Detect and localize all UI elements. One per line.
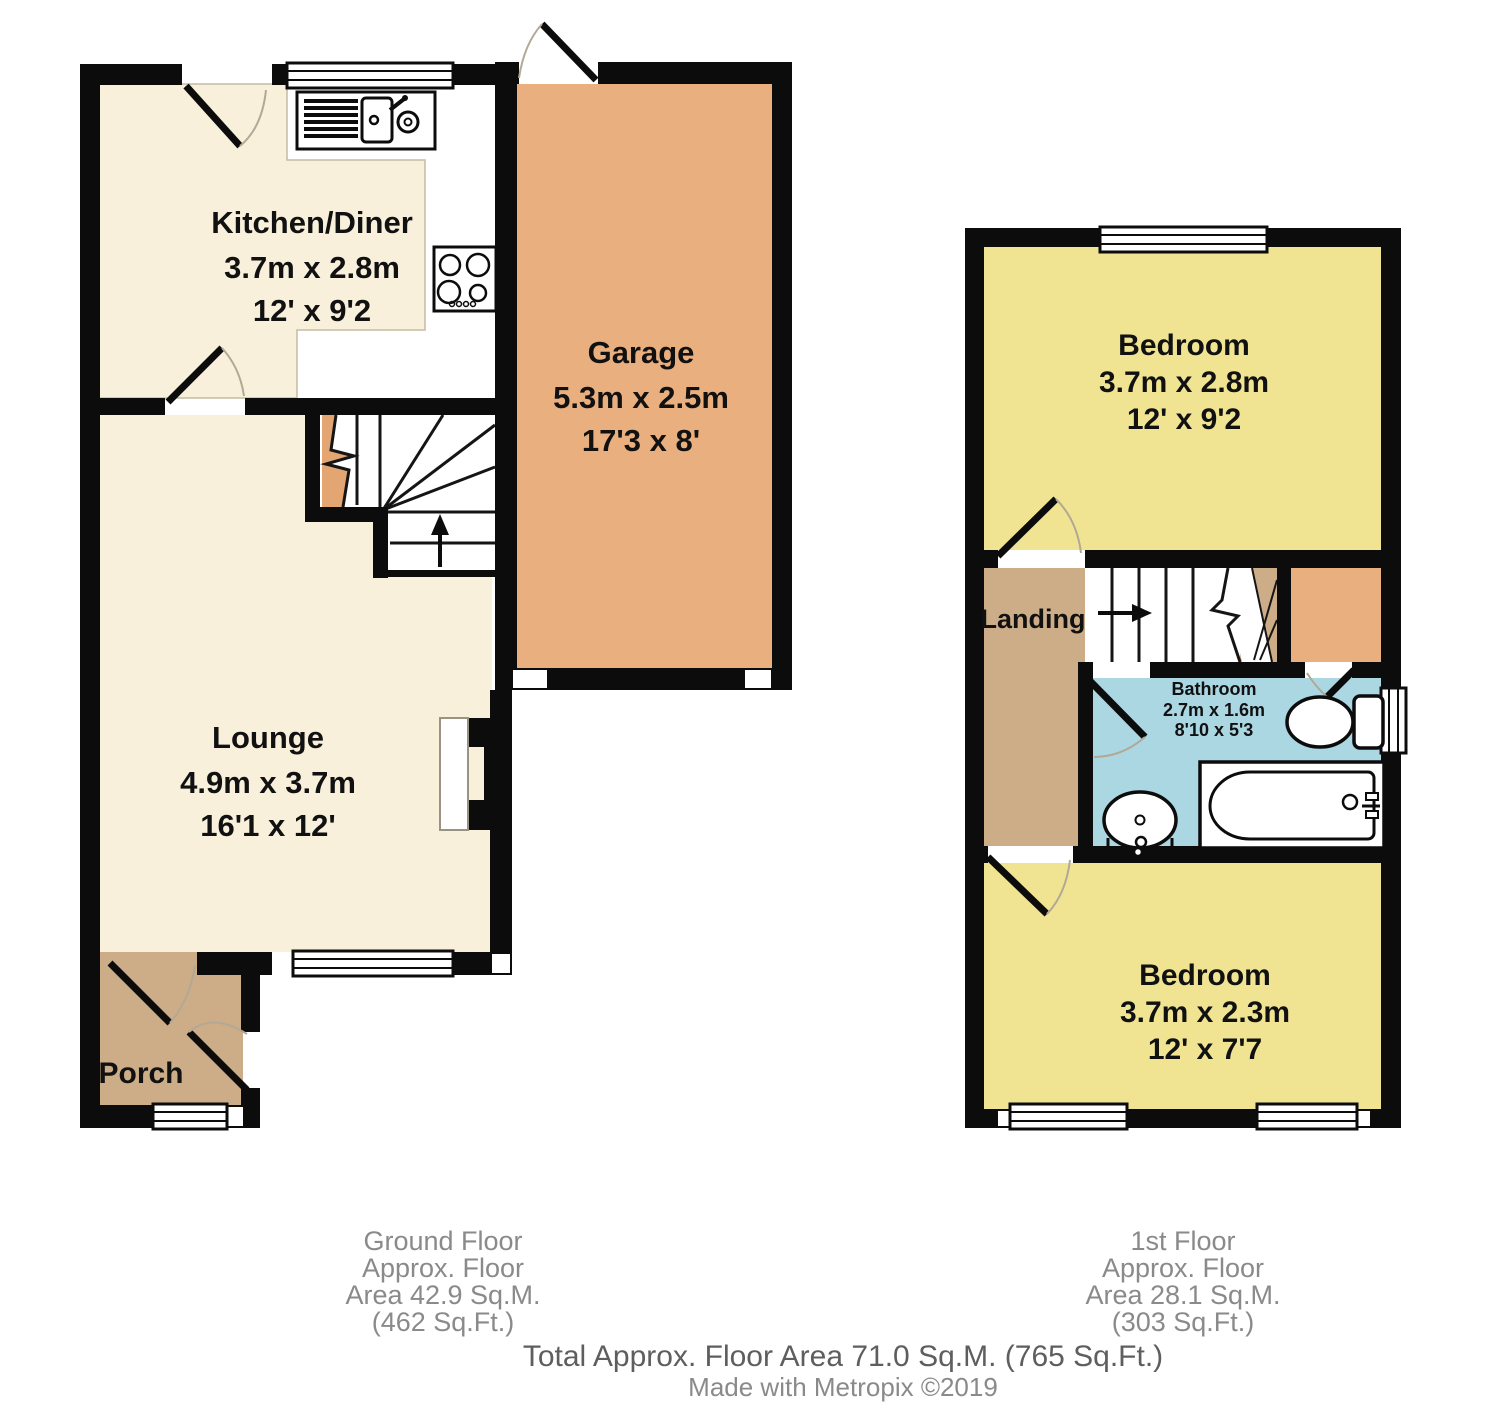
lounge-metric: 4.9m x 3.7m	[180, 765, 356, 800]
ground-floor-caption-2: Approx. Floor	[362, 1253, 524, 1283]
bedroom1-metric: 3.7m x 2.8m	[1099, 366, 1269, 399]
bedroom2-window-left	[1010, 1104, 1127, 1129]
ground-floor-plan: Kitchen/Diner 3.7m x 2.8m 12' x 9'2 Gara…	[80, 24, 792, 1129]
bedroom1-label: Bedroom	[1118, 329, 1250, 362]
porch-window	[153, 1104, 227, 1129]
bedroom2-metric: 3.7m x 2.3m	[1120, 996, 1290, 1029]
garage-door	[519, 24, 596, 80]
lounge-imperial: 16'1 x 12'	[200, 808, 335, 843]
lounge-window	[293, 951, 453, 976]
bath-tub	[1200, 762, 1384, 848]
garage-metric: 5.3m x 2.5m	[553, 380, 729, 415]
landing-label: Landing	[981, 604, 1086, 634]
first-floor-plan: Bedroom 3.7m x 2.8m 12' x 9'2 Landing Ba…	[965, 227, 1406, 1129]
first-floor-caption-1: 1st Floor	[1130, 1226, 1235, 1256]
garage-imperial: 17'3 x 8'	[582, 423, 700, 458]
bedroom1-imperial: 12' x 9'2	[1127, 403, 1241, 436]
toilet	[1287, 696, 1383, 748]
cupboard-floor	[1291, 568, 1381, 662]
garage-floor	[517, 84, 772, 668]
footer: Ground Floor Approx. Floor Area 42.9 Sq.…	[345, 1226, 1280, 1402]
kitchen-imperial: 12' x 9'2	[253, 293, 371, 328]
hob	[434, 247, 496, 311]
floorplan-page: Kitchen/Diner 3.7m x 2.8m 12' x 9'2 Gara…	[0, 0, 1500, 1405]
kitchen-sink-unit	[297, 92, 435, 149]
ground-floor-caption-4: (462 Sq.Ft.)	[372, 1307, 515, 1337]
bedroom2-window-right	[1257, 1104, 1357, 1129]
chimney-breast	[440, 718, 512, 830]
kitchen-window	[287, 63, 453, 88]
porch-label: Porch	[98, 1057, 183, 1090]
first-floor-caption-2: Approx. Floor	[1102, 1253, 1264, 1283]
ground-floor-caption-3: Area 42.9 Sq.M.	[345, 1280, 540, 1310]
bedroom2-imperial: 12' x 7'7	[1148, 1033, 1262, 1066]
bedroom1-window	[1100, 227, 1267, 252]
kitchen-metric: 3.7m x 2.8m	[224, 250, 400, 285]
bedroom2-label: Bedroom	[1139, 959, 1271, 992]
floorplan-svg: Kitchen/Diner 3.7m x 2.8m 12' x 9'2 Gara…	[0, 0, 1500, 1405]
first-floor-caption-3: Area 28.1 Sq.M.	[1085, 1280, 1280, 1310]
lounge-label: Lounge	[212, 720, 324, 755]
ground-floor-caption-1: Ground Floor	[363, 1226, 522, 1256]
bathroom-imperial: 8'10 x 5'3	[1175, 720, 1254, 740]
hearth	[440, 718, 468, 830]
garage-label: Garage	[588, 335, 695, 370]
total-area-caption: Total Approx. Floor Area 71.0 Sq.M. (765…	[523, 1340, 1163, 1373]
bathroom-metric: 2.7m x 1.6m	[1163, 700, 1265, 720]
metropix-credit: Made with Metropix ©2019	[688, 1372, 998, 1402]
bathroom-label: Bathroom	[1172, 679, 1257, 699]
kitchen-label: Kitchen/Diner	[211, 205, 413, 240]
first-floor-caption-4: (303 Sq.Ft.)	[1112, 1307, 1255, 1337]
